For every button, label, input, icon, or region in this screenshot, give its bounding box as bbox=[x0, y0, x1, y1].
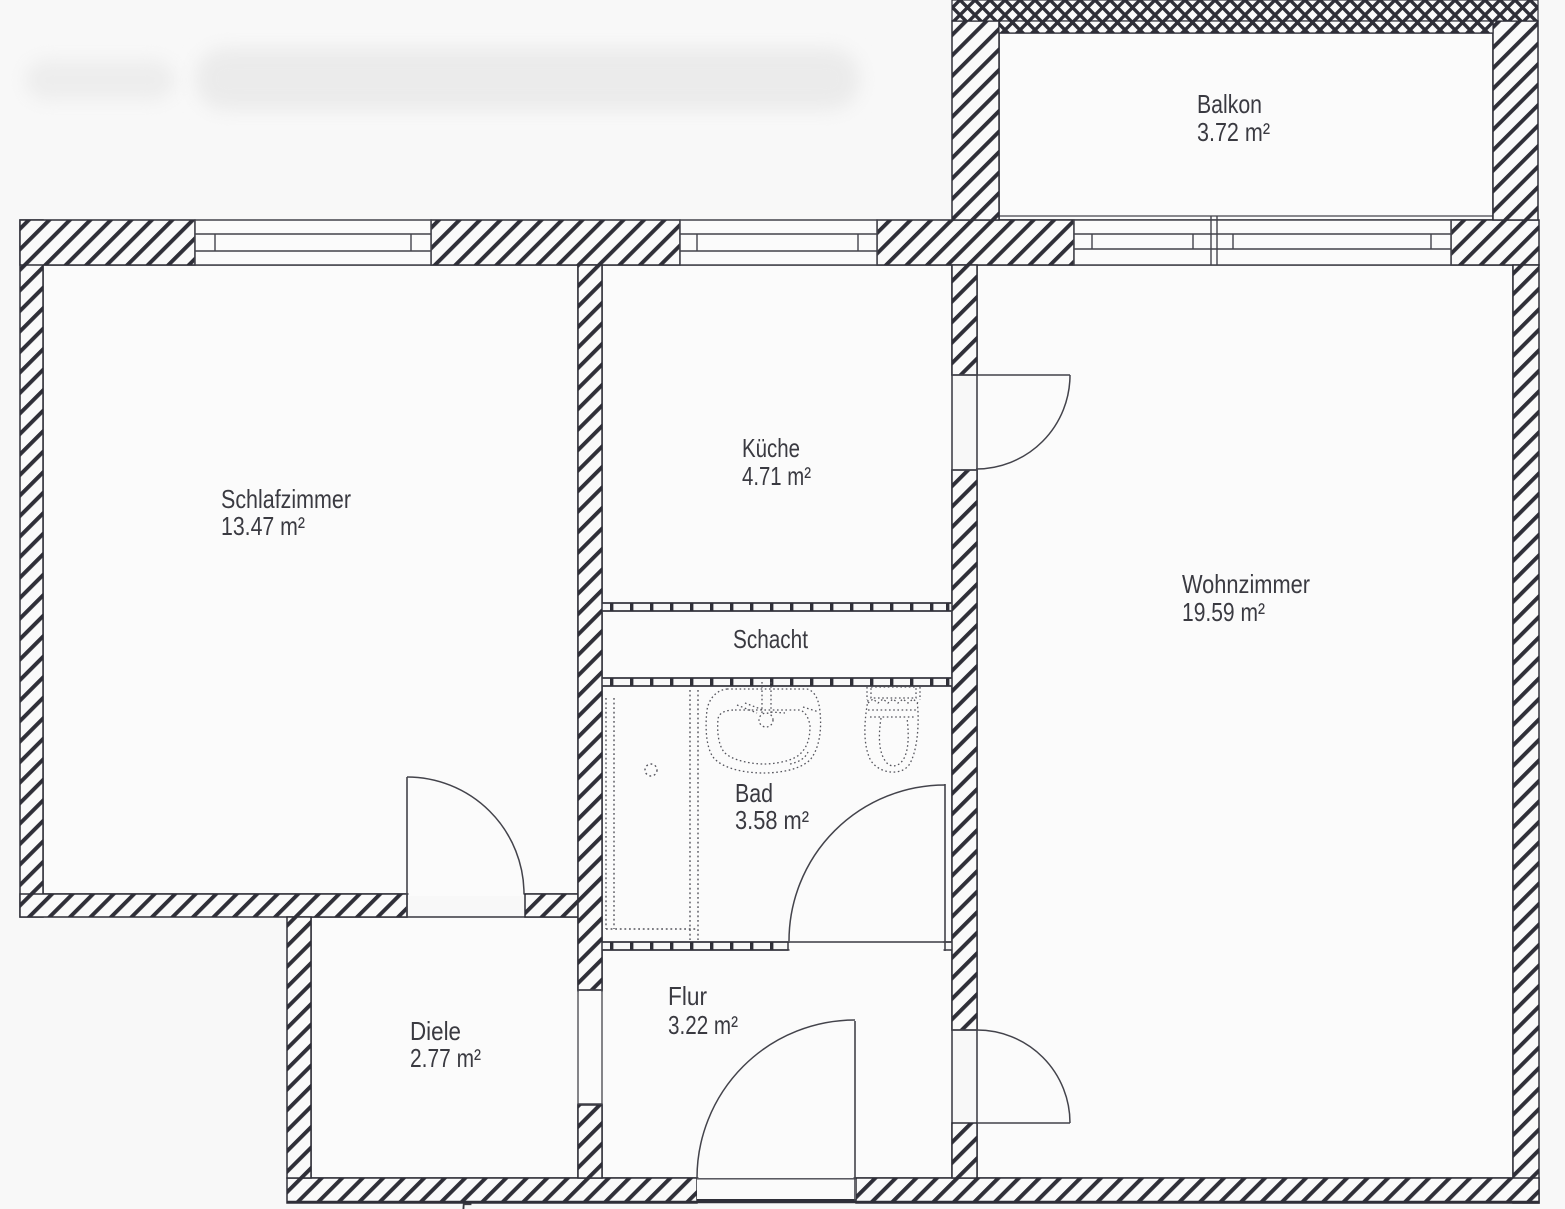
svg-text:2.77 m²: 2.77 m² bbox=[410, 1043, 481, 1073]
svg-text:Bad: Bad bbox=[735, 778, 773, 808]
svg-text:13.47 m²: 13.47 m² bbox=[221, 511, 305, 541]
svg-text:Balkon: Balkon bbox=[1197, 89, 1262, 119]
svg-text:Schacht: Schacht bbox=[733, 624, 809, 654]
svg-text:Flur: Flur bbox=[668, 981, 707, 1011]
svg-text:Diele: Diele bbox=[410, 1016, 461, 1046]
svg-text:4.71 m²: 4.71 m² bbox=[742, 461, 811, 491]
svg-text:Schlafzimmer: Schlafzimmer bbox=[221, 484, 351, 514]
svg-text:3.22 m²: 3.22 m² bbox=[668, 1010, 738, 1040]
svg-text:Wohnzimmer: Wohnzimmer bbox=[1182, 569, 1310, 599]
svg-text:3.72 m²: 3.72 m² bbox=[1197, 117, 1270, 147]
svg-text:3.58 m²: 3.58 m² bbox=[735, 805, 809, 835]
svg-text:5: 5 bbox=[461, 1199, 473, 1209]
svg-text:Küche: Küche bbox=[742, 433, 800, 463]
svg-text:19.59 m²: 19.59 m² bbox=[1182, 597, 1265, 627]
